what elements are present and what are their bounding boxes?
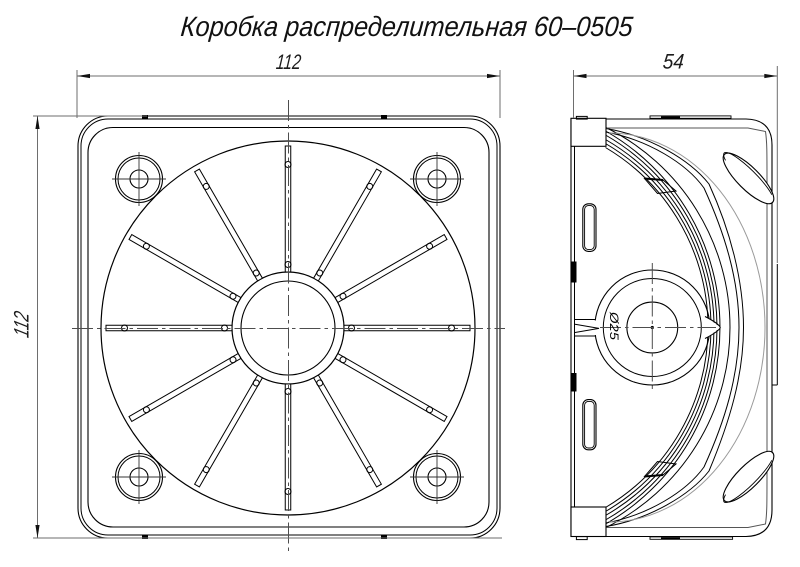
svg-text:Ø25: Ø25 <box>607 311 619 341</box>
svg-text:54: 54 <box>662 51 685 74</box>
svg-text:112: 112 <box>275 51 302 74</box>
svg-text:Коробка распределительная 60–0: Коробка распределительная 60–0505 <box>179 11 634 42</box>
